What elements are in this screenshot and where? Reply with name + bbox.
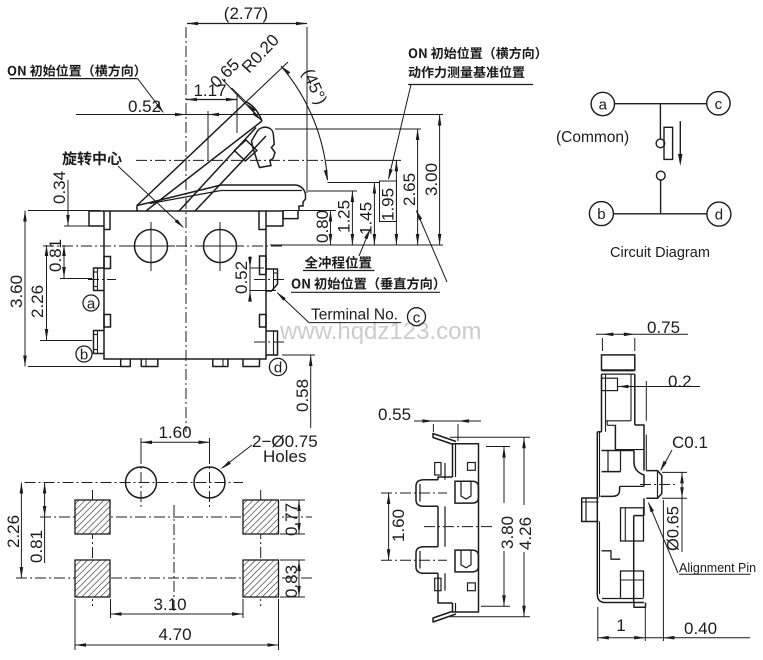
svg-text:a: a xyxy=(599,97,608,114)
svg-text:Ø0.65: Ø0.65 xyxy=(665,506,683,551)
svg-text:Holes: Holes xyxy=(263,447,306,466)
svg-text:Alignment Pin: Alignment Pin xyxy=(679,561,756,575)
svg-text:0.81: 0.81 xyxy=(46,239,65,272)
svg-text:Circuit Diagram: Circuit Diagram xyxy=(610,245,710,261)
svg-text:3.60: 3.60 xyxy=(7,275,26,308)
svg-text:2.26: 2.26 xyxy=(28,285,47,318)
svg-text:0.77: 0.77 xyxy=(282,503,301,536)
svg-text:0.40: 0.40 xyxy=(684,619,717,638)
svg-text:0.83: 0.83 xyxy=(282,565,301,598)
svg-text:b: b xyxy=(80,347,88,364)
svg-text:C0.1: C0.1 xyxy=(672,433,708,452)
svg-text:0.55: 0.55 xyxy=(378,405,411,424)
svg-text:d: d xyxy=(715,207,723,224)
svg-text:1.60: 1.60 xyxy=(389,509,408,542)
svg-text:0.2: 0.2 xyxy=(668,372,692,391)
svg-text:1.95: 1.95 xyxy=(379,188,398,221)
svg-text:2.26: 2.26 xyxy=(4,515,23,548)
svg-text:3.80: 3.80 xyxy=(498,516,517,549)
svg-text:1.60: 1.60 xyxy=(158,423,191,442)
svg-text:1: 1 xyxy=(616,616,625,635)
svg-text:0.52: 0.52 xyxy=(128,97,161,116)
svg-text:2.65: 2.65 xyxy=(400,173,419,206)
svg-text:b: b xyxy=(597,206,605,223)
svg-text:a: a xyxy=(87,296,96,313)
svg-text:d: d xyxy=(274,360,282,377)
svg-text:0.80: 0.80 xyxy=(313,210,332,243)
svg-text:3.10: 3.10 xyxy=(153,595,186,614)
svg-text:(2.77): (2.77) xyxy=(224,4,268,23)
svg-text:(Common): (Common) xyxy=(556,129,629,146)
svg-text:1.45: 1.45 xyxy=(357,202,376,235)
svg-text:4.26: 4.26 xyxy=(516,517,535,550)
svg-text:4.70: 4.70 xyxy=(158,625,191,644)
svg-text:0.58: 0.58 xyxy=(293,379,312,412)
svg-text:3.00: 3.00 xyxy=(422,163,441,196)
svg-text:0.34: 0.34 xyxy=(50,171,69,204)
svg-text:c: c xyxy=(715,96,723,113)
svg-text:0.52: 0.52 xyxy=(232,261,251,294)
svg-text:c: c xyxy=(413,309,421,326)
svg-text:Terminal No.: Terminal No. xyxy=(311,307,398,324)
svg-text:1.25: 1.25 xyxy=(335,200,354,233)
svg-text:0.81: 0.81 xyxy=(27,530,46,563)
